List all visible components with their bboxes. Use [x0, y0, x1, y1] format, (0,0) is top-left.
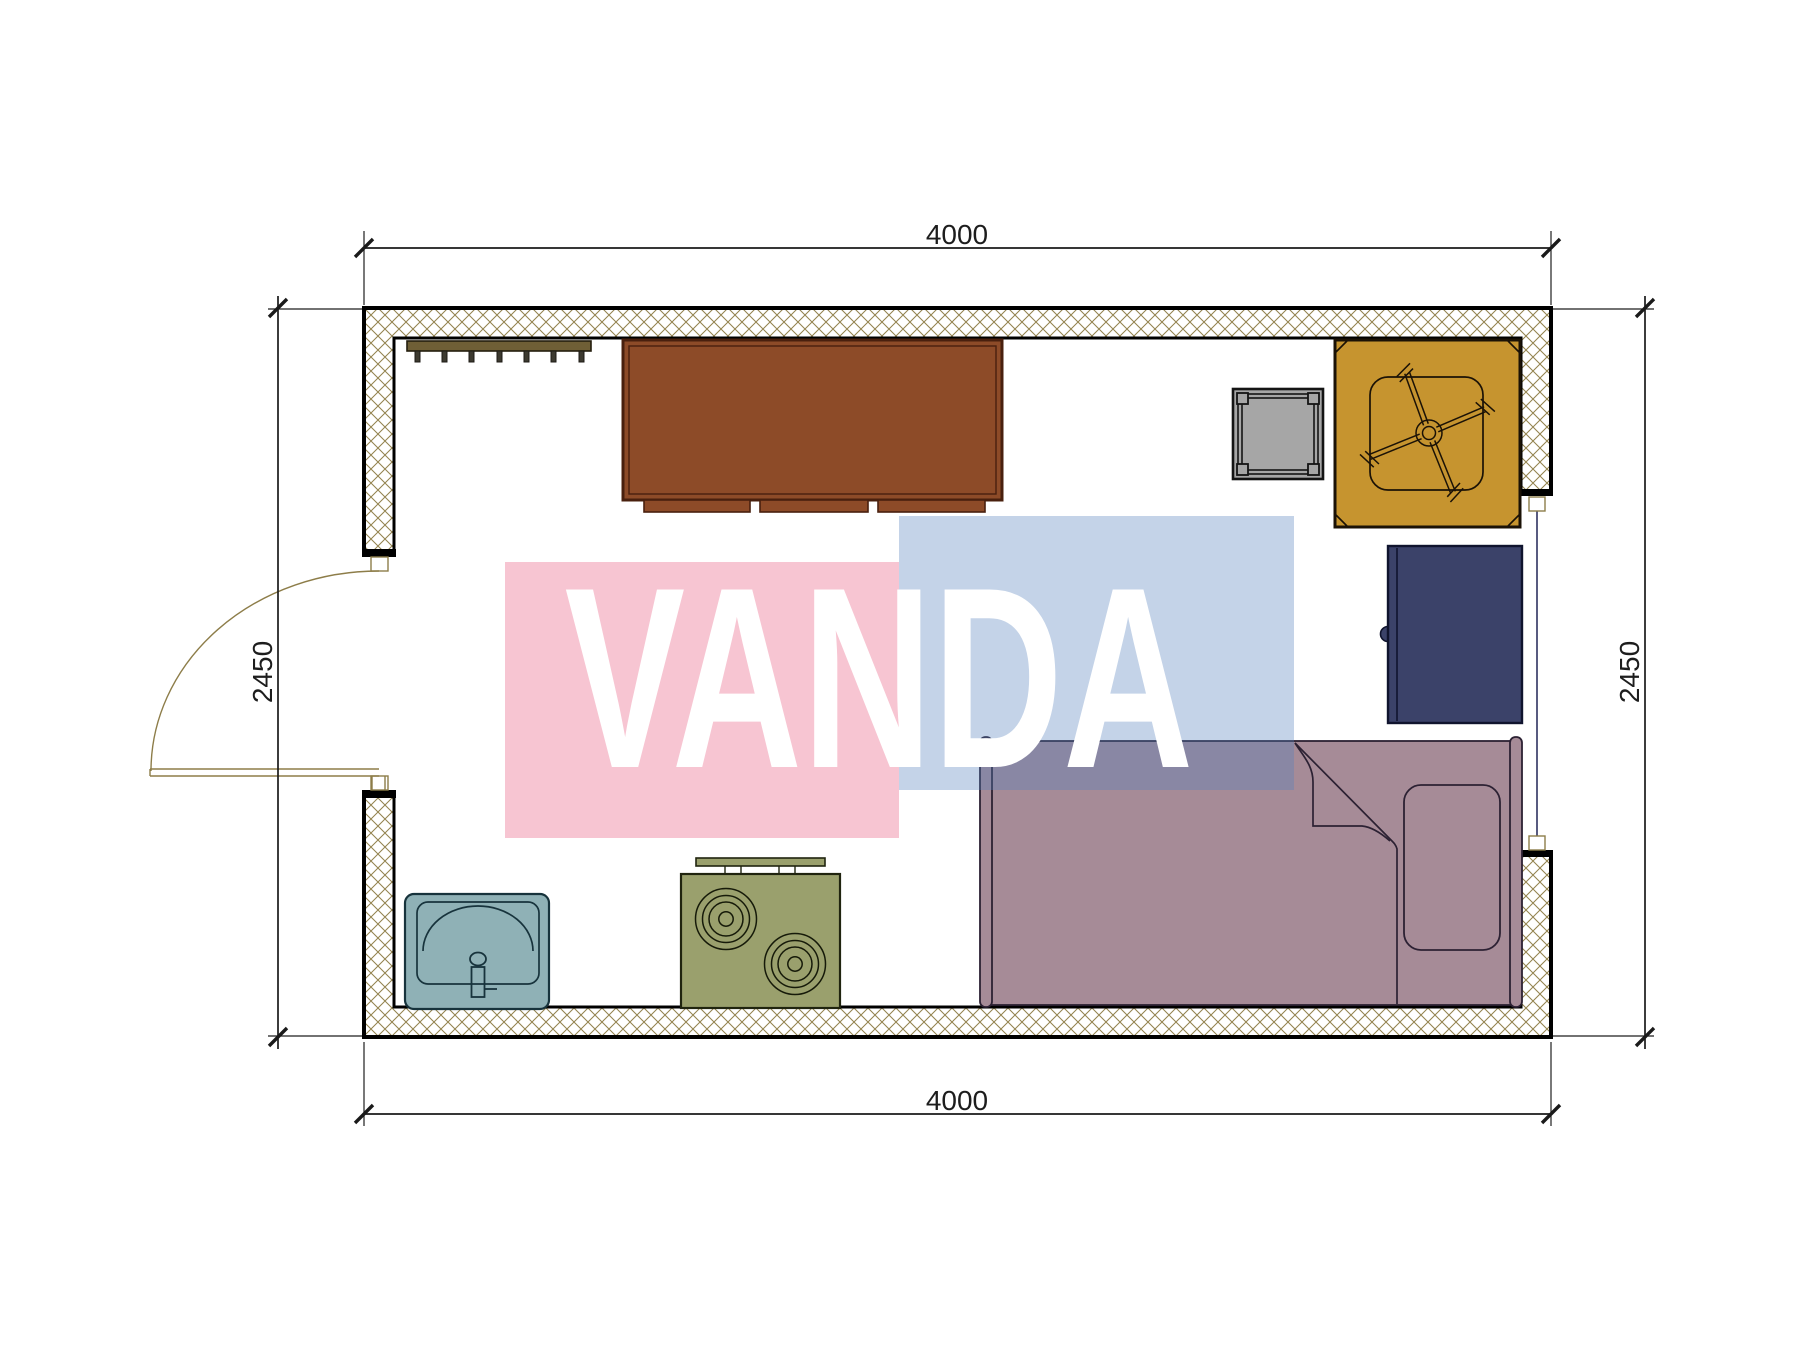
svg-text:4000: 4000	[926, 1085, 988, 1116]
svg-text:VANDA: VANDA	[565, 534, 1194, 822]
svg-text:4000: 4000	[926, 219, 988, 250]
svg-text:2450: 2450	[1614, 641, 1645, 703]
svg-text:2450: 2450	[247, 641, 278, 703]
